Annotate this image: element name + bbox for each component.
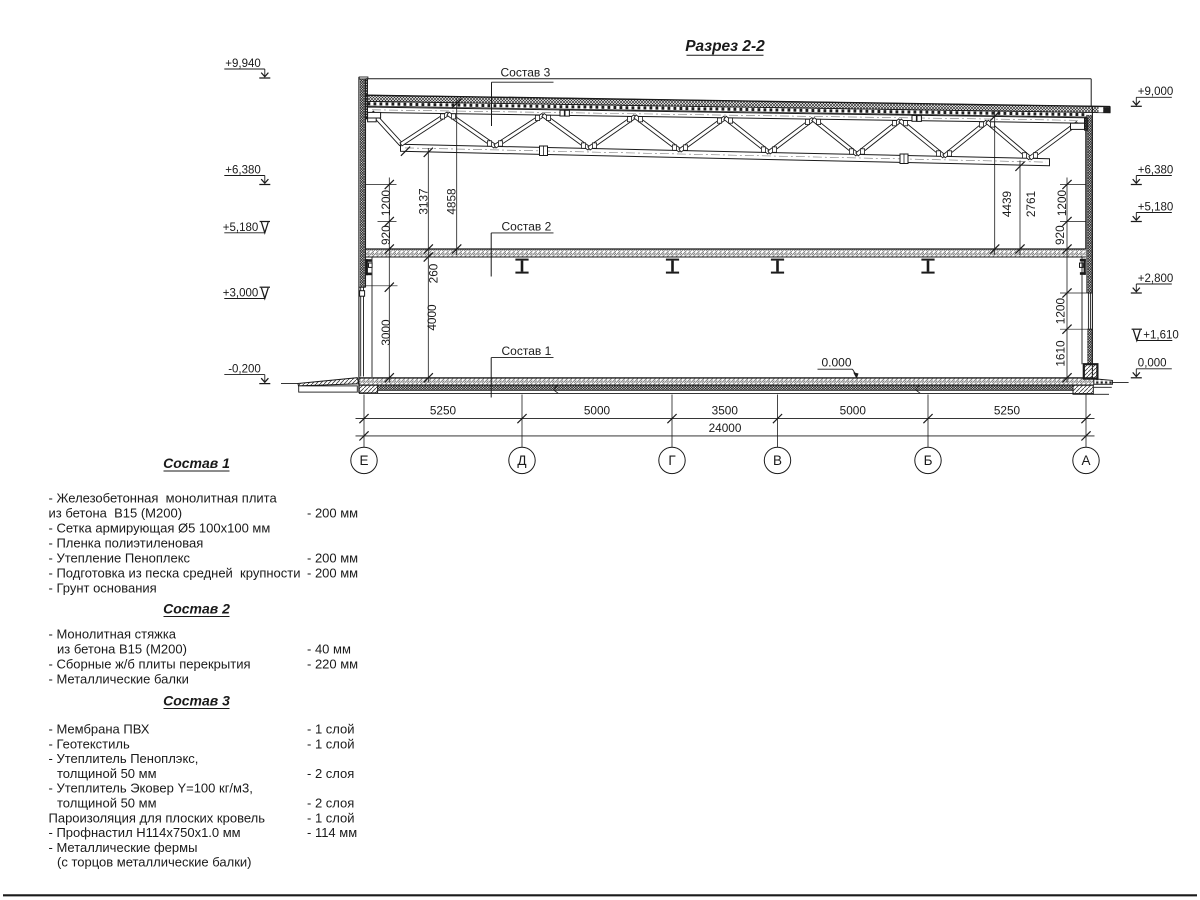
svg-text:4000: 4000 xyxy=(425,304,439,331)
svg-text:Б: Б xyxy=(924,453,933,468)
svg-text:- 1 слой: - 1 слой xyxy=(307,736,355,751)
svg-text:Состав 1: Состав 1 xyxy=(502,344,552,358)
svg-text:Состав 2: Состав 2 xyxy=(502,219,552,233)
svg-text:из бетона В15 (М200): из бетона В15 (М200) xyxy=(49,506,183,521)
svg-text:1200: 1200 xyxy=(1054,298,1068,325)
svg-text:(с торцов металлические балки): (с торцов металлические балки) xyxy=(57,855,252,870)
svg-text:+5,180: +5,180 xyxy=(1138,201,1174,213)
svg-text:4439: 4439 xyxy=(1000,191,1014,217)
svg-text:- Утепление Пеноплекс: - Утепление Пеноплекс xyxy=(49,551,191,566)
svg-text:- Монолитная стяжка: - Монолитная стяжка xyxy=(49,627,177,642)
svg-text:- 200 мм: - 200 мм xyxy=(307,506,358,521)
svg-text:Состав 3: Состав 3 xyxy=(501,66,551,80)
svg-text:толщиной 50 мм: толщиной 50 мм xyxy=(57,766,157,781)
svg-text:Состав 1: Состав 1 xyxy=(163,455,230,471)
svg-text:Д: Д xyxy=(517,453,526,468)
svg-text:5250: 5250 xyxy=(430,403,457,417)
svg-text:А: А xyxy=(1081,453,1090,468)
svg-text:+2,800: +2,800 xyxy=(1138,273,1174,285)
svg-text:- Подготовка из песка средней: - Подготовка из песка средней крупности xyxy=(49,566,301,581)
svg-text:-0,200: -0,200 xyxy=(228,363,261,375)
svg-text:Разрез 2-2: Разрез 2-2 xyxy=(685,38,765,55)
svg-text:Е: Е xyxy=(359,453,368,468)
svg-text:из бетона В15 (М200): из бетона В15 (М200) xyxy=(57,642,187,657)
svg-text:- Сборные ж/б плиты перекрытия: - Сборные ж/б плиты перекрытия xyxy=(49,657,251,672)
svg-text:3000: 3000 xyxy=(379,319,393,346)
svg-text:- 2 слоя: - 2 слоя xyxy=(307,766,354,781)
svg-text:- Геотекстиль: - Геотекстиль xyxy=(49,736,130,751)
svg-text:Г: Г xyxy=(668,453,676,468)
svg-text:5250: 5250 xyxy=(994,403,1021,417)
svg-text:- Утеплитель Эковер Y=100 кг/м: - Утеплитель Эковер Y=100 кг/м3, xyxy=(49,781,253,796)
svg-text:260: 260 xyxy=(427,263,441,283)
svg-text:+9,940: +9,940 xyxy=(225,58,261,70)
svg-text:1610: 1610 xyxy=(1054,340,1068,367)
svg-text:- Металлические фермы: - Металлические фермы xyxy=(49,840,198,855)
svg-text:- 2 слоя: - 2 слоя xyxy=(307,796,354,811)
svg-text:1200: 1200 xyxy=(1055,189,1069,216)
svg-text:920: 920 xyxy=(1053,225,1067,245)
svg-text:- 200 мм: - 200 мм xyxy=(307,551,358,566)
svg-text:Пароизоляция для плоских крове: Пароизоляция для плоских кровель xyxy=(49,810,266,825)
svg-text:+9,000: +9,000 xyxy=(1138,86,1174,98)
svg-text:5000: 5000 xyxy=(584,403,611,417)
svg-text:+3,000: +3,000 xyxy=(223,288,259,300)
svg-text:3500: 3500 xyxy=(712,403,739,417)
svg-text:- Металлические балки: - Металлические балки xyxy=(49,672,189,687)
svg-text:- 220 мм: - 220 мм xyxy=(307,657,358,672)
svg-text:4858: 4858 xyxy=(445,188,459,215)
svg-text:Состав 3: Состав 3 xyxy=(163,693,230,709)
svg-text:+6,380: +6,380 xyxy=(1138,164,1174,176)
svg-text:- 1 слой: - 1 слой xyxy=(307,810,355,825)
svg-text:- Железобетонная монолитная п: - Железобетонная монолитная плита xyxy=(49,491,278,506)
svg-text:- Сетка армирующая Ø5 100х100: - Сетка армирующая Ø5 100х100 мм xyxy=(49,521,271,536)
svg-text:3137: 3137 xyxy=(416,188,430,214)
svg-text:2761: 2761 xyxy=(1024,191,1038,217)
svg-text:5000: 5000 xyxy=(840,403,867,417)
svg-text:+5,180: +5,180 xyxy=(223,222,259,234)
svg-text:- 114 мм: - 114 мм xyxy=(307,825,357,840)
svg-text:0.000: 0.000 xyxy=(822,355,852,369)
svg-text:В: В xyxy=(773,453,782,468)
svg-text:- Пленка полиэтиленовая: - Пленка полиэтиленовая xyxy=(49,536,204,551)
svg-text:0,000: 0,000 xyxy=(1138,358,1167,370)
svg-text:- 40 мм: - 40 мм xyxy=(307,642,351,657)
svg-text:- Профнастил Н114х750х1.0 мм: - Профнастил Н114х750х1.0 мм xyxy=(49,825,241,840)
svg-text:- Грунт основания: - Грунт основания xyxy=(49,581,157,596)
svg-text:- 200 мм: - 200 мм xyxy=(307,566,358,581)
svg-text:Состав 2: Состав 2 xyxy=(163,601,230,617)
svg-text:- Утеплитель Пеноплэкс,: - Утеплитель Пеноплэкс, xyxy=(49,751,199,766)
svg-text:920: 920 xyxy=(379,225,393,245)
svg-text:+1,610: +1,610 xyxy=(1143,330,1179,342)
svg-text:- Мембрана ПВХ: - Мембрана ПВХ xyxy=(49,722,150,737)
svg-text:24000: 24000 xyxy=(709,421,742,435)
svg-text:1200: 1200 xyxy=(379,189,393,216)
svg-text:толщиной 50 мм: толщиной 50 мм xyxy=(57,796,157,811)
svg-text:- 1 слой: - 1 слой xyxy=(307,722,355,737)
svg-text:+6,380: +6,380 xyxy=(225,164,261,176)
